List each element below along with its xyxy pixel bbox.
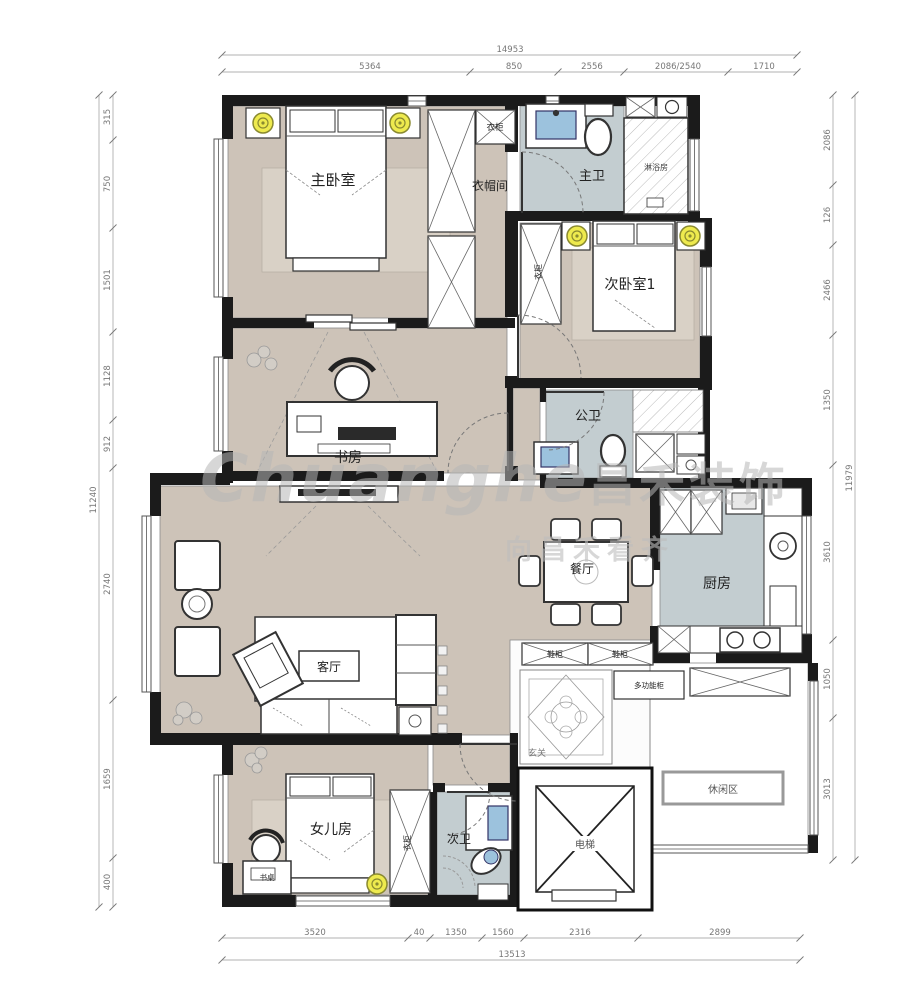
ceiling-lamp-icon [567,226,587,246]
window [702,267,711,336]
living-plant [190,712,202,724]
mbath-tap [554,111,559,116]
study-chair [335,366,369,400]
lamp-dot [261,121,264,124]
wall-segment [222,318,314,328]
wall-segment [222,471,444,481]
dim-label: 2086/2540 [655,62,701,72]
daughter-plant [252,763,262,773]
room-label: 淋浴房 [644,162,668,172]
dim-label: 1128 [103,365,113,387]
dim-label: 1350 [445,928,467,938]
room-label: 书桌 [260,872,275,882]
fridge [660,490,691,534]
daughter-pillow [333,777,371,796]
room-label: 女儿房 [310,821,352,838]
ceiling-lamp-icon [367,874,387,894]
dim-label: 3520 [304,928,326,938]
room-label: 客厅 [317,659,341,674]
master-pillow [338,110,383,132]
sbath-cabinet [478,884,508,900]
dining-chair [551,604,580,625]
floor-plan-page: 主卧室衣帽间主卫次卧室1书房公卫餐厅厨房客厅女儿房次卫玄关电梯休闲区衣柜衣柜衣柜… [0,0,900,994]
dim-label: 315 [103,109,113,125]
elevator-sill [552,890,616,901]
dimension-line: 14953 [219,45,801,59]
room-label: 多功能柜 [634,680,664,690]
window [214,775,223,863]
dim-label: 400 [103,874,113,890]
window [214,357,223,451]
dim-label: 1050 [823,668,833,690]
entry-medallion-inner [529,679,603,755]
pbath-cistern [600,466,626,477]
lamp-dot [688,234,691,237]
wall-segment [150,473,161,516]
cloak-wardrobe [428,236,475,328]
wall-segment [540,478,702,488]
sliding-door-leaf [350,323,396,330]
dim-label: 1659 [103,768,113,790]
study-plant [265,358,277,370]
room-label: 厨房 [703,576,731,592]
lamp-dot [375,882,378,885]
dimension-line: 11240 [89,92,103,911]
dim-label: 912 [103,436,113,452]
room-label: 衣柜 [486,122,504,133]
dining-chair [592,604,621,625]
deco-square [438,706,447,715]
window [690,139,699,211]
room-label: 衣帽间 [472,178,508,193]
wall-segment [488,783,510,792]
dim-label: 126 [823,207,833,223]
mbath-toilet [585,119,611,155]
dim-label: 750 [103,176,113,192]
wall-segment [505,223,518,317]
window [142,516,151,692]
room-label: 鞋柜 [547,649,563,659]
room-label: 电梯 [575,838,595,851]
mbath-cistern [585,104,613,116]
lamp-dot [398,121,401,124]
dim-label: 14953 [496,45,523,55]
room-label: 次卫 [447,832,471,846]
room-label: 衣柜 [533,264,543,280]
master-pillow [290,110,335,132]
stove [720,628,780,652]
bedroom1-pillow [597,224,634,244]
pbath-toilet [601,435,625,467]
lamp-dot [575,234,578,237]
room-label: 主卧室 [310,171,355,189]
kitchen-appliance-inner [732,493,756,509]
ceiling-lamp-icon [390,113,410,133]
dining-chair [551,519,580,540]
ceiling-lamp-icon [680,226,700,246]
deco-square [438,646,447,655]
dining-chair [519,556,540,586]
kitchen-board [770,586,796,630]
daughter-pillow [290,777,330,796]
kitchen-sink [770,533,796,559]
dim-label: 2086 [823,129,833,151]
armchair [175,541,220,590]
daughter-plant [255,747,267,759]
dim-label: 1350 [823,389,833,411]
wall-segment [222,863,233,907]
pbath-laundry-tile [633,390,703,432]
dim-label: 11240 [89,486,99,513]
dimension-line: 3520401350156023162899 [219,928,804,942]
fridge [691,490,722,534]
daughter-bed-foot [291,878,369,893]
dining-chair [632,556,653,586]
room-label: 衣柜 [402,835,412,851]
room-label: 玄关 [528,747,546,759]
cloak-wardrobe [428,110,475,232]
dimension-line: 13513 [219,950,804,964]
deco-square [438,666,447,675]
master-bed-bench [293,258,379,271]
room-label: 休闲区 [708,783,738,796]
wall-segment [716,653,812,663]
wall-segment [433,783,445,792]
kitchen-low-cabinet [658,626,690,653]
dim-label: 11979 [845,464,855,491]
dim-label: 13513 [498,950,525,960]
dim-label: 2556 [581,62,603,72]
dim-label: 2466 [823,279,833,301]
dim-label: 40 [414,928,425,938]
sbath-sink [488,806,508,840]
daughter-chair [252,835,280,863]
bedroom1-pillow [637,224,673,244]
dim-label: 1501 [103,269,113,291]
dining-chair [592,519,621,540]
chaise [396,615,436,705]
dimension-line: 3157501501112891227401659400 [103,92,117,911]
room-label: 书房 [334,450,362,466]
sliding-door-leaf [306,315,352,322]
room-label: 鞋柜 [612,649,628,659]
sbath-toilet-lid [484,850,498,864]
wall-segment [808,835,818,853]
dimension-line: 536485025562086/25401710 [219,62,801,76]
deco-square [438,686,447,695]
wall-segment [505,211,518,223]
wall-segment [222,745,233,775]
ceiling-lamp-icon [253,113,273,133]
window [802,516,811,634]
window [810,681,818,835]
window [408,96,426,106]
wall-segment [222,95,233,139]
dim-label: 1560 [492,928,514,938]
dimension-line: 208612624661350361010503013 [823,92,837,864]
wall-segment [150,473,230,485]
dim-label: 1710 [753,62,775,72]
deco-square [438,724,447,733]
wall-segment [540,388,546,402]
dim-label: 2740 [103,573,113,595]
side-table [182,589,212,619]
wall-segment [808,663,818,681]
study-plant [258,346,270,358]
dimension-line: 11979 [845,92,859,864]
window [214,139,223,297]
window [296,896,390,906]
pbath-cabinet [677,434,705,454]
wall-segment [150,733,230,745]
wall-segment [505,466,518,481]
dim-label: 5364 [359,62,381,72]
pbath-sink [541,447,569,467]
living-plant [173,715,183,725]
dim-label: 3610 [823,541,833,563]
study-laptop [297,416,321,432]
wall-segment [688,95,700,139]
dim-label: 3013 [823,778,833,800]
floor-plan-drawing: 主卧室衣帽间主卫次卧室1书房公卫餐厅厨房客厅女儿房次卫玄关电梯休闲区衣柜衣柜衣柜… [0,0,900,994]
wall-segment [511,378,705,388]
dim-label: 2316 [569,928,591,938]
tv [298,489,376,496]
window [650,845,808,853]
room-label: 餐厅 [570,561,594,576]
pbath-cabinet [677,456,705,474]
kitchen-corner-counter [764,488,802,516]
dim-label: 850 [506,62,522,72]
room-label: 主卫 [579,169,605,184]
wall-segment [222,895,296,907]
room-label: 公卫 [575,409,601,424]
pbath-shower-tray [636,434,674,472]
dryer-box [626,97,655,117]
shower-drain [647,198,663,207]
room-label: 次卧室1 [605,276,656,293]
wall-segment [698,478,812,488]
corner-table [399,707,431,735]
leisure-bench [690,668,790,696]
armchair [175,627,220,676]
dim-label: 2899 [709,928,731,938]
study-keyboard [338,427,396,440]
